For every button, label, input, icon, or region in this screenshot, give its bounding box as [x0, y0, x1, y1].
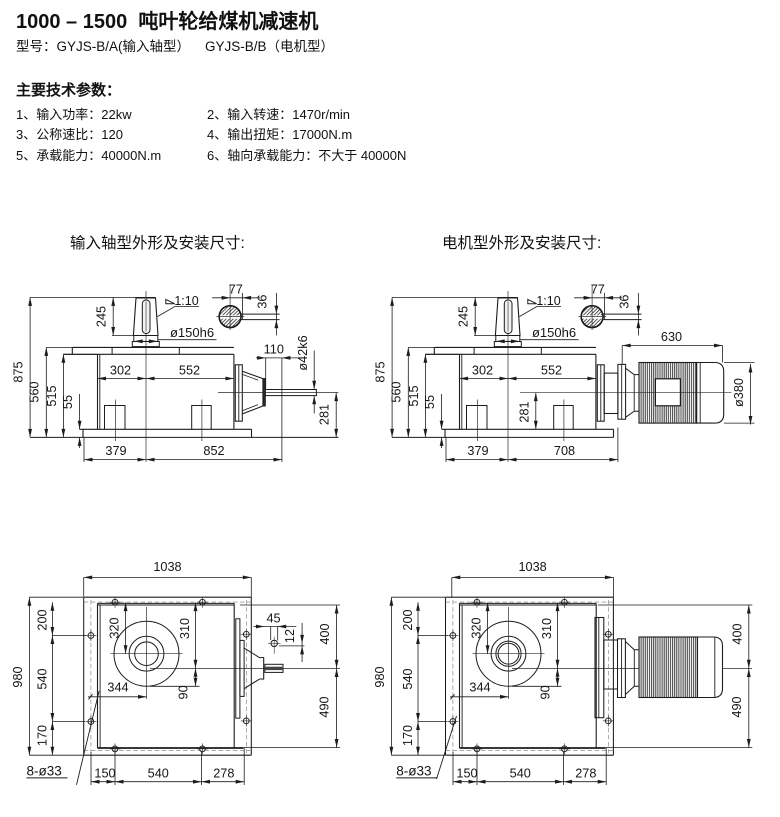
svg-text:379: 379	[467, 444, 488, 458]
svg-text:515: 515	[407, 385, 421, 406]
svg-text:36: 36	[256, 295, 270, 309]
svg-text:110: 110	[264, 343, 284, 357]
svg-text:77: 77	[229, 283, 243, 297]
svg-text:1:10: 1:10	[536, 294, 560, 308]
svg-text:320: 320	[108, 617, 122, 638]
svg-text:1038: 1038	[518, 560, 546, 574]
svg-text:150: 150	[456, 766, 477, 780]
svg-text:980: 980	[11, 666, 25, 687]
svg-text:8-ø33: 8-ø33	[396, 763, 431, 778]
svg-text:540: 540	[510, 766, 531, 780]
svg-text:12: 12	[283, 629, 297, 643]
svg-text:55: 55	[61, 395, 75, 409]
svg-text:200: 200	[401, 609, 415, 630]
svg-text:1038: 1038	[153, 560, 181, 574]
svg-text:400: 400	[318, 623, 332, 644]
svg-text:55: 55	[423, 395, 437, 409]
svg-text:875: 875	[12, 361, 26, 382]
svg-text:ø150h6: ø150h6	[170, 325, 214, 340]
svg-text:379: 379	[105, 444, 126, 458]
svg-text:ø380: ø380	[732, 378, 746, 407]
svg-text:560: 560	[28, 381, 42, 402]
svg-text:310: 310	[540, 618, 554, 639]
svg-text:980: 980	[373, 666, 387, 687]
svg-text:875: 875	[374, 361, 388, 382]
svg-text:490: 490	[730, 696, 744, 717]
svg-text:281: 281	[517, 401, 531, 422]
svg-text:90: 90	[177, 685, 191, 699]
svg-text:302: 302	[110, 364, 131, 378]
svg-text:490: 490	[318, 696, 332, 717]
svg-text:708: 708	[554, 444, 575, 458]
svg-text:170: 170	[401, 725, 415, 746]
svg-text:8-ø33: 8-ø33	[27, 763, 62, 778]
svg-text:245: 245	[95, 306, 109, 327]
svg-text:344: 344	[469, 681, 490, 695]
svg-text:310: 310	[178, 618, 192, 639]
svg-text:302: 302	[472, 364, 493, 378]
svg-text:36: 36	[618, 295, 632, 309]
svg-text:540: 540	[148, 766, 169, 780]
svg-text:552: 552	[541, 364, 562, 378]
svg-text:400: 400	[730, 623, 744, 644]
svg-text:515: 515	[45, 385, 59, 406]
svg-text:ø150h6: ø150h6	[532, 325, 576, 340]
svg-text:320: 320	[470, 617, 484, 638]
svg-text:540: 540	[401, 668, 415, 689]
svg-text:560: 560	[390, 381, 404, 402]
svg-text:630: 630	[661, 330, 682, 344]
svg-text:552: 552	[179, 364, 200, 378]
svg-text:540: 540	[36, 668, 50, 689]
svg-text:245: 245	[457, 306, 471, 327]
svg-text:281: 281	[318, 404, 332, 425]
svg-text:77: 77	[591, 283, 605, 297]
svg-text:90: 90	[539, 685, 553, 699]
svg-text:344: 344	[107, 681, 128, 695]
svg-text:170: 170	[36, 725, 50, 746]
svg-text:ø42k6: ø42k6	[296, 335, 310, 370]
svg-text:200: 200	[36, 609, 50, 630]
svg-text:1:10: 1:10	[174, 294, 198, 308]
svg-text:150: 150	[94, 766, 115, 780]
svg-text:278: 278	[213, 766, 234, 780]
svg-text:852: 852	[203, 444, 224, 458]
svg-text:278: 278	[575, 766, 596, 780]
svg-text:45: 45	[266, 611, 280, 625]
